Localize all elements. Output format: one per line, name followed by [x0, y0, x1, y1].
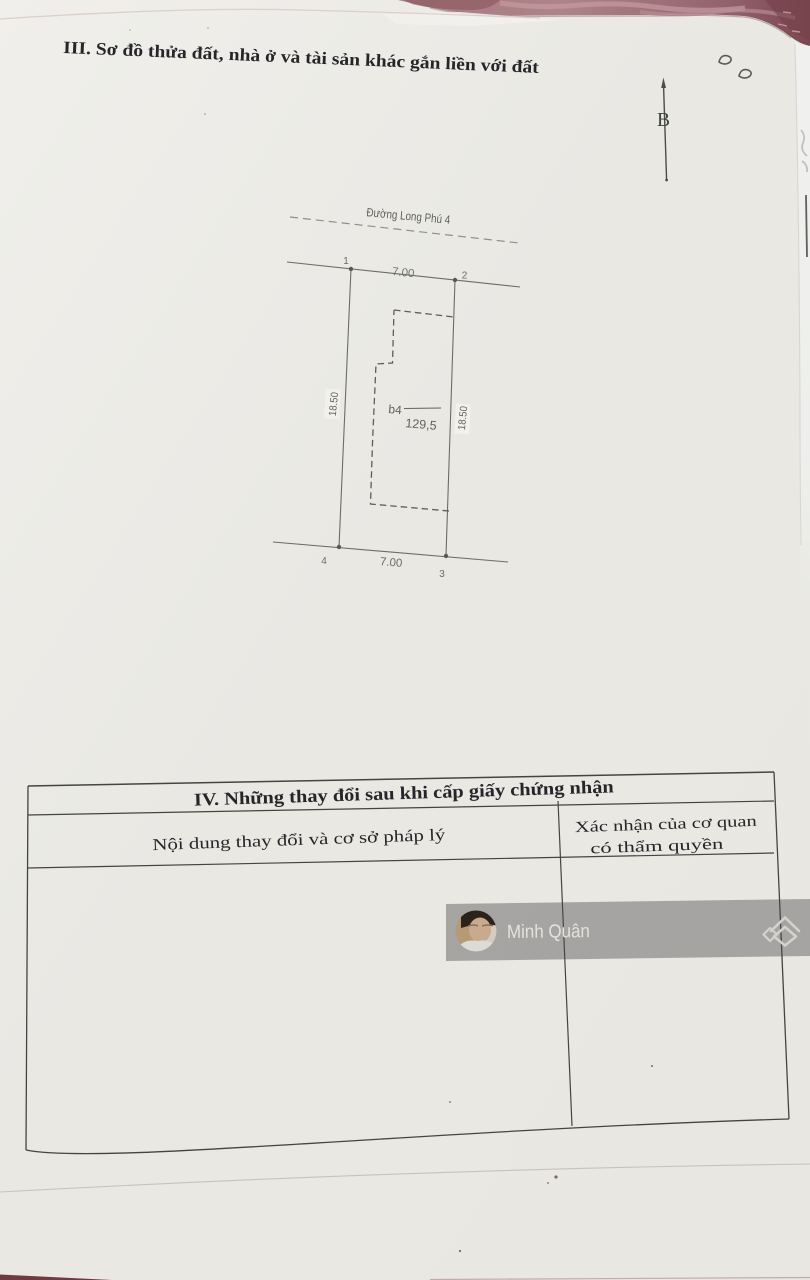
svg-text:Minh Quân: Minh Quân: [507, 921, 590, 943]
svg-text:B: B: [657, 110, 670, 131]
svg-text:7.00: 7.00: [391, 266, 415, 280]
svg-text:18.50: 18.50: [327, 391, 341, 416]
svg-text:2: 2: [462, 271, 468, 282]
svg-text:129,5: 129,5: [405, 416, 437, 433]
svg-text:18.50: 18.50: [456, 405, 470, 430]
svg-text:3: 3: [439, 569, 445, 580]
svg-text:7.00: 7.00: [379, 556, 402, 570]
svg-text:1: 1: [343, 256, 349, 267]
svg-text:4: 4: [321, 556, 327, 567]
svg-text:b4: b4: [388, 402, 403, 417]
